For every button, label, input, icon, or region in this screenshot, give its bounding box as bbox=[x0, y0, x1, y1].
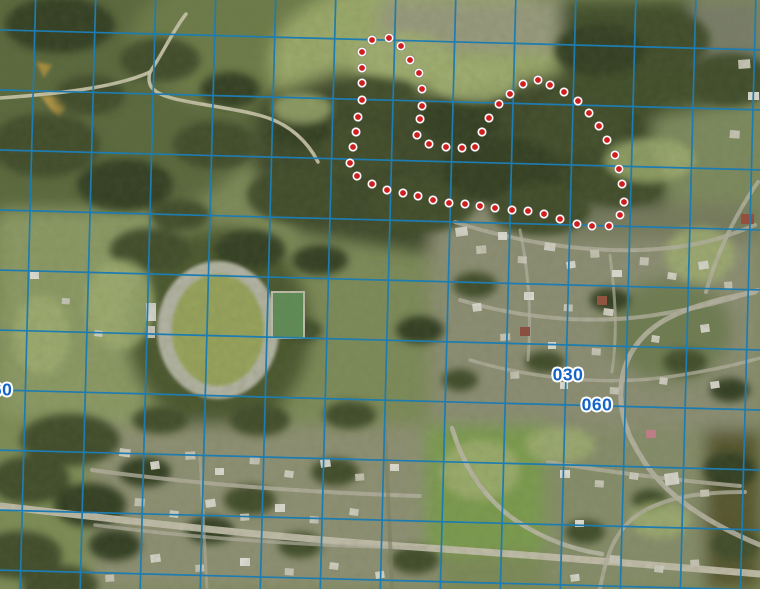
grid-label-060-left: 060 bbox=[0, 380, 12, 401]
boundary-vertex-dot bbox=[604, 137, 610, 143]
boundary-vertex-dot bbox=[472, 144, 478, 150]
boundary-vertex-dot bbox=[507, 91, 513, 97]
boundary-vertex-dot bbox=[496, 101, 502, 107]
boundary-vertex-dot bbox=[492, 205, 498, 211]
boundary-vertex-dot bbox=[621, 199, 627, 205]
boundary-vertex-dot bbox=[589, 223, 595, 229]
boundary-vertex-dot bbox=[355, 114, 361, 120]
boundary-vertex-dot bbox=[359, 49, 365, 55]
boundary-vertex-dot bbox=[347, 160, 353, 166]
boundary-vertex-dot bbox=[369, 181, 375, 187]
boundary-vertex-dot bbox=[430, 197, 436, 203]
boundary-vertex-dot bbox=[369, 37, 375, 43]
boundary-vertex-dot bbox=[426, 141, 432, 147]
boundary-vertex-dot bbox=[479, 129, 485, 135]
boundary-vertex-dot bbox=[596, 123, 602, 129]
boundary-vertex-dot bbox=[459, 145, 465, 151]
boundary-vertex-dot bbox=[350, 144, 356, 150]
boundary-vertex-dot bbox=[619, 181, 625, 187]
boundary-vertex-dot bbox=[486, 115, 492, 121]
grid-label-060: 060 bbox=[582, 395, 613, 416]
boundary-vertex-dot bbox=[359, 80, 365, 86]
boundary-vertex-dot bbox=[617, 212, 623, 218]
boundary-vertex-dot bbox=[386, 35, 392, 41]
boundary-vertex-dot bbox=[509, 207, 515, 213]
boundary-vertex-dot bbox=[616, 166, 622, 172]
boundary-layer bbox=[0, 0, 760, 589]
boundary-vertex-dot bbox=[477, 203, 483, 209]
boundary-vertex-dot bbox=[606, 223, 612, 229]
boundary-vertex-dot bbox=[354, 173, 360, 179]
boundary-vertex-dot bbox=[415, 193, 421, 199]
boundary-vertex-dot bbox=[541, 211, 547, 217]
boundary-vertex-dot bbox=[612, 152, 618, 158]
boundary-vertex-dot bbox=[574, 221, 580, 227]
boundary-vertex-dot bbox=[535, 77, 541, 83]
boundary-vertex-dot bbox=[417, 116, 423, 122]
boundary-vertex-dot bbox=[525, 208, 531, 214]
boundary-vertex-dot bbox=[586, 110, 592, 116]
boundary-vertex-dot bbox=[419, 103, 425, 109]
boundary-vertex-dot bbox=[398, 43, 404, 49]
boundary-vertex-dot bbox=[384, 187, 390, 193]
boundary-vertex-dot bbox=[416, 70, 422, 76]
boundary-vertex-dot bbox=[400, 190, 406, 196]
boundary-vertex-dot bbox=[462, 201, 468, 207]
boundary-vertex-dot bbox=[443, 144, 449, 150]
boundary-vertex-dot bbox=[419, 86, 425, 92]
boundary-vertex-dot bbox=[446, 200, 452, 206]
boundary-vertex-dot bbox=[557, 216, 563, 222]
boundary-vertex-dot bbox=[561, 89, 567, 95]
boundary-vertex-dot bbox=[547, 82, 553, 88]
boundary-vertex-dot bbox=[359, 97, 365, 103]
boundary-vertex-dot bbox=[520, 81, 526, 87]
boundary-vertex-dot bbox=[359, 65, 365, 71]
boundary-vertex-dot bbox=[414, 132, 420, 138]
boundary-vertex-dot bbox=[407, 57, 413, 63]
map-canvas[interactable]: 030 060 060 bbox=[0, 0, 760, 589]
boundary-vertex-dot bbox=[575, 98, 581, 104]
boundary-vertex-dot bbox=[353, 129, 359, 135]
grid-label-030: 030 bbox=[553, 365, 584, 386]
